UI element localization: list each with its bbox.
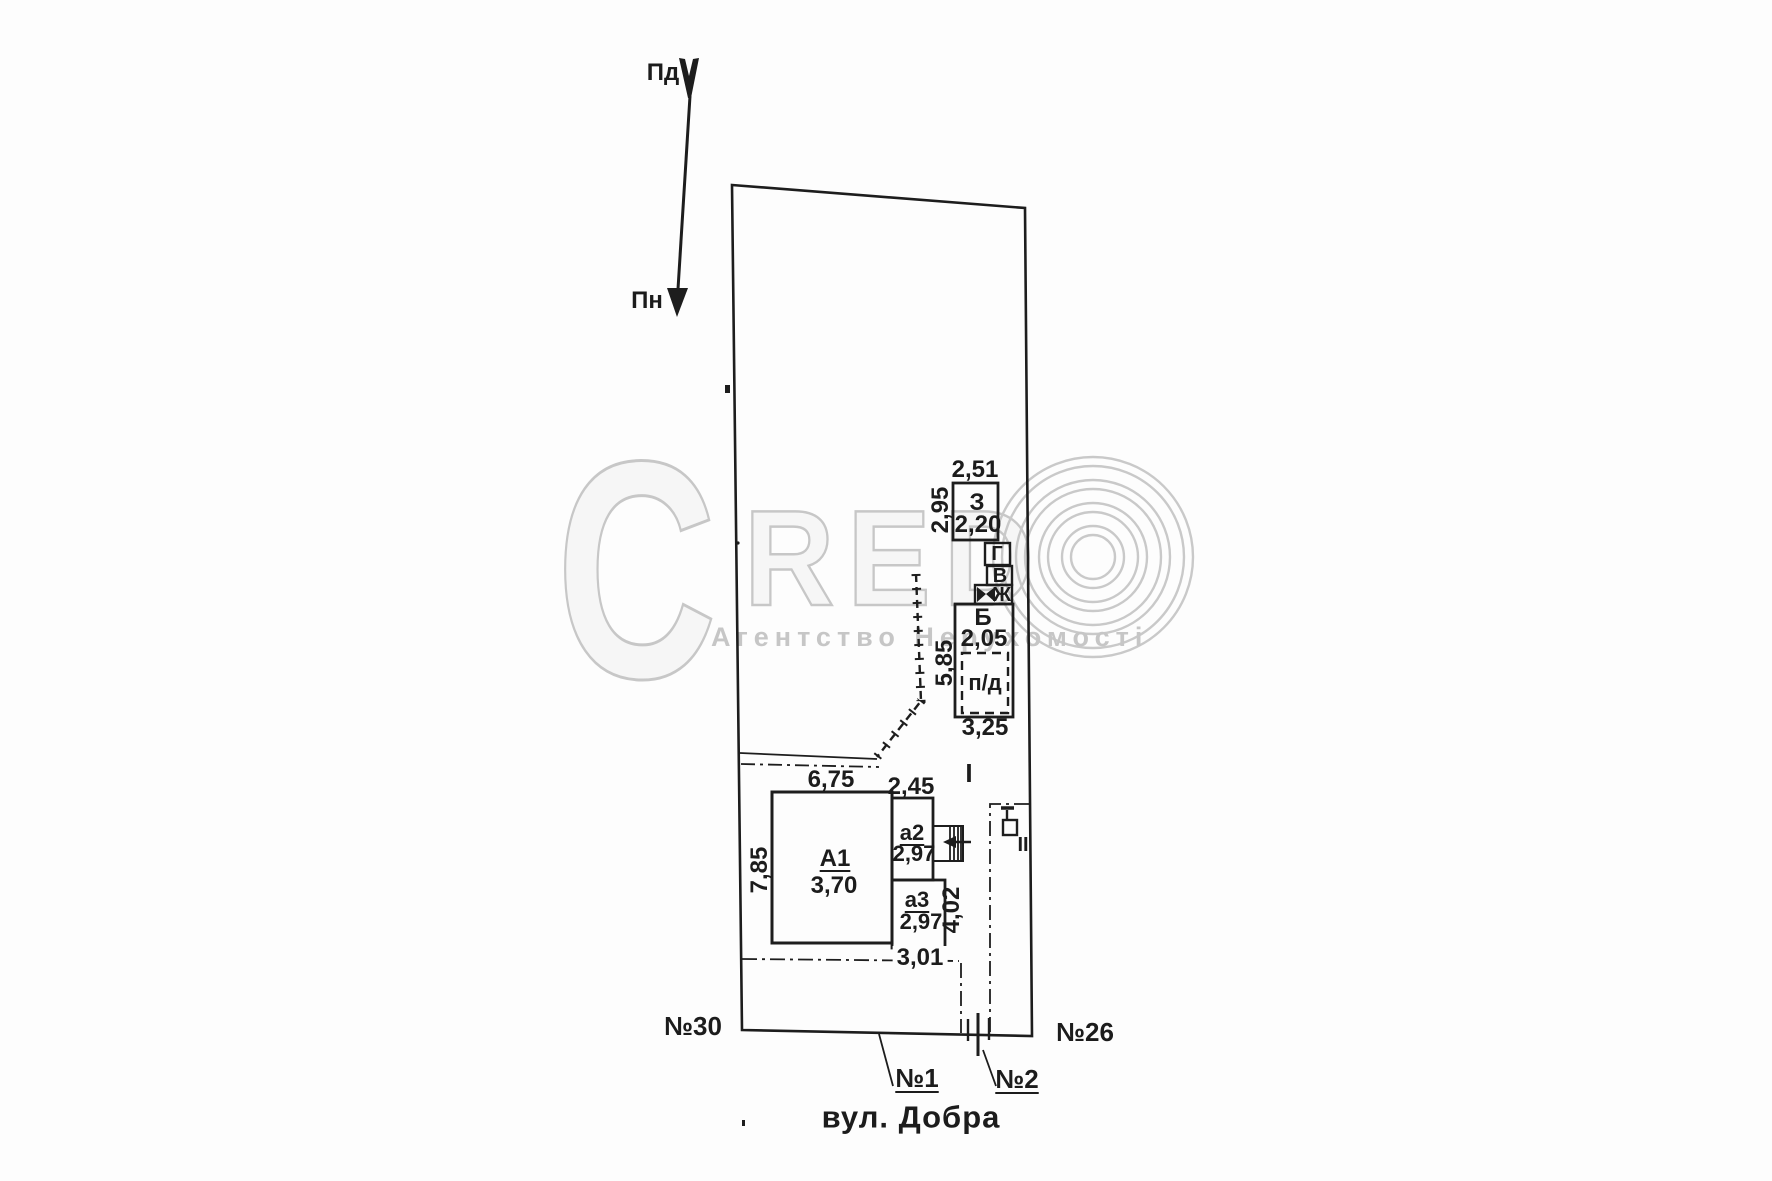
north-arrow-fletching-icon bbox=[679, 58, 699, 98]
building-g-label: Г bbox=[991, 544, 1002, 564]
building-zh-cross-left-icon bbox=[977, 587, 986, 602]
building-a3-mark: 2,97 bbox=[900, 911, 943, 933]
dim-a1-top: 6,75 bbox=[808, 768, 855, 792]
north-arrow-shaft bbox=[678, 96, 690, 289]
plan-drawing bbox=[0, 0, 1772, 1181]
dim-a3-side: 4,02 bbox=[940, 887, 964, 934]
dim-setback-bottom: 3,01 bbox=[893, 946, 948, 970]
dim-a1-side: 7,85 bbox=[748, 847, 772, 894]
gate2-label: №2 bbox=[995, 1066, 1038, 1092]
building-z-mark: 2,20 bbox=[955, 513, 1002, 537]
compass-south-label: Пд bbox=[647, 61, 679, 85]
section-marker-1: І bbox=[965, 760, 972, 786]
compass-north-label: Пн bbox=[631, 289, 663, 313]
dim-z-side: 2,95 bbox=[929, 487, 953, 534]
valve-symbol-icon bbox=[1003, 820, 1017, 835]
dim-a2-top: 2,45 bbox=[888, 775, 935, 799]
fence-line-dashed bbox=[877, 574, 921, 757]
gate1-leader-line bbox=[879, 1034, 893, 1086]
building-pd-label: п/д bbox=[968, 672, 1001, 694]
dim-b-side: 5,85 bbox=[933, 640, 957, 687]
gate1-label: №1 bbox=[895, 1065, 938, 1091]
dim-b-bottom: 3,25 bbox=[962, 716, 1009, 740]
building-v-label: В bbox=[993, 566, 1007, 586]
neighbor-left-label: №30 bbox=[664, 1013, 722, 1039]
site-plan-scan: C RED Агентство Нерухомості bbox=[0, 0, 1772, 1181]
inner-boundary-solid-line bbox=[740, 753, 877, 759]
building-a1-label: А1 bbox=[820, 847, 851, 871]
gate2-leader-line bbox=[983, 1050, 996, 1086]
building-a1-mark: 3,70 bbox=[811, 874, 858, 898]
scan-speck bbox=[742, 1120, 745, 1126]
building-a3-label: а3 bbox=[905, 889, 929, 911]
building-a2-mark: 2,97 bbox=[893, 843, 936, 865]
building-b-mark: 2,05 bbox=[961, 627, 1008, 651]
north-arrow-head-icon bbox=[667, 288, 688, 317]
scan-speck bbox=[725, 385, 730, 393]
neighbor-right-label: №26 bbox=[1056, 1019, 1114, 1045]
section-marker-2: ІІ bbox=[1017, 835, 1028, 855]
building-zh-label: Ж bbox=[993, 585, 1011, 605]
street-name-label: вул. Добра bbox=[822, 1102, 1001, 1133]
dim-z-top: 2,51 bbox=[952, 458, 999, 482]
scan-speck bbox=[736, 541, 739, 544]
